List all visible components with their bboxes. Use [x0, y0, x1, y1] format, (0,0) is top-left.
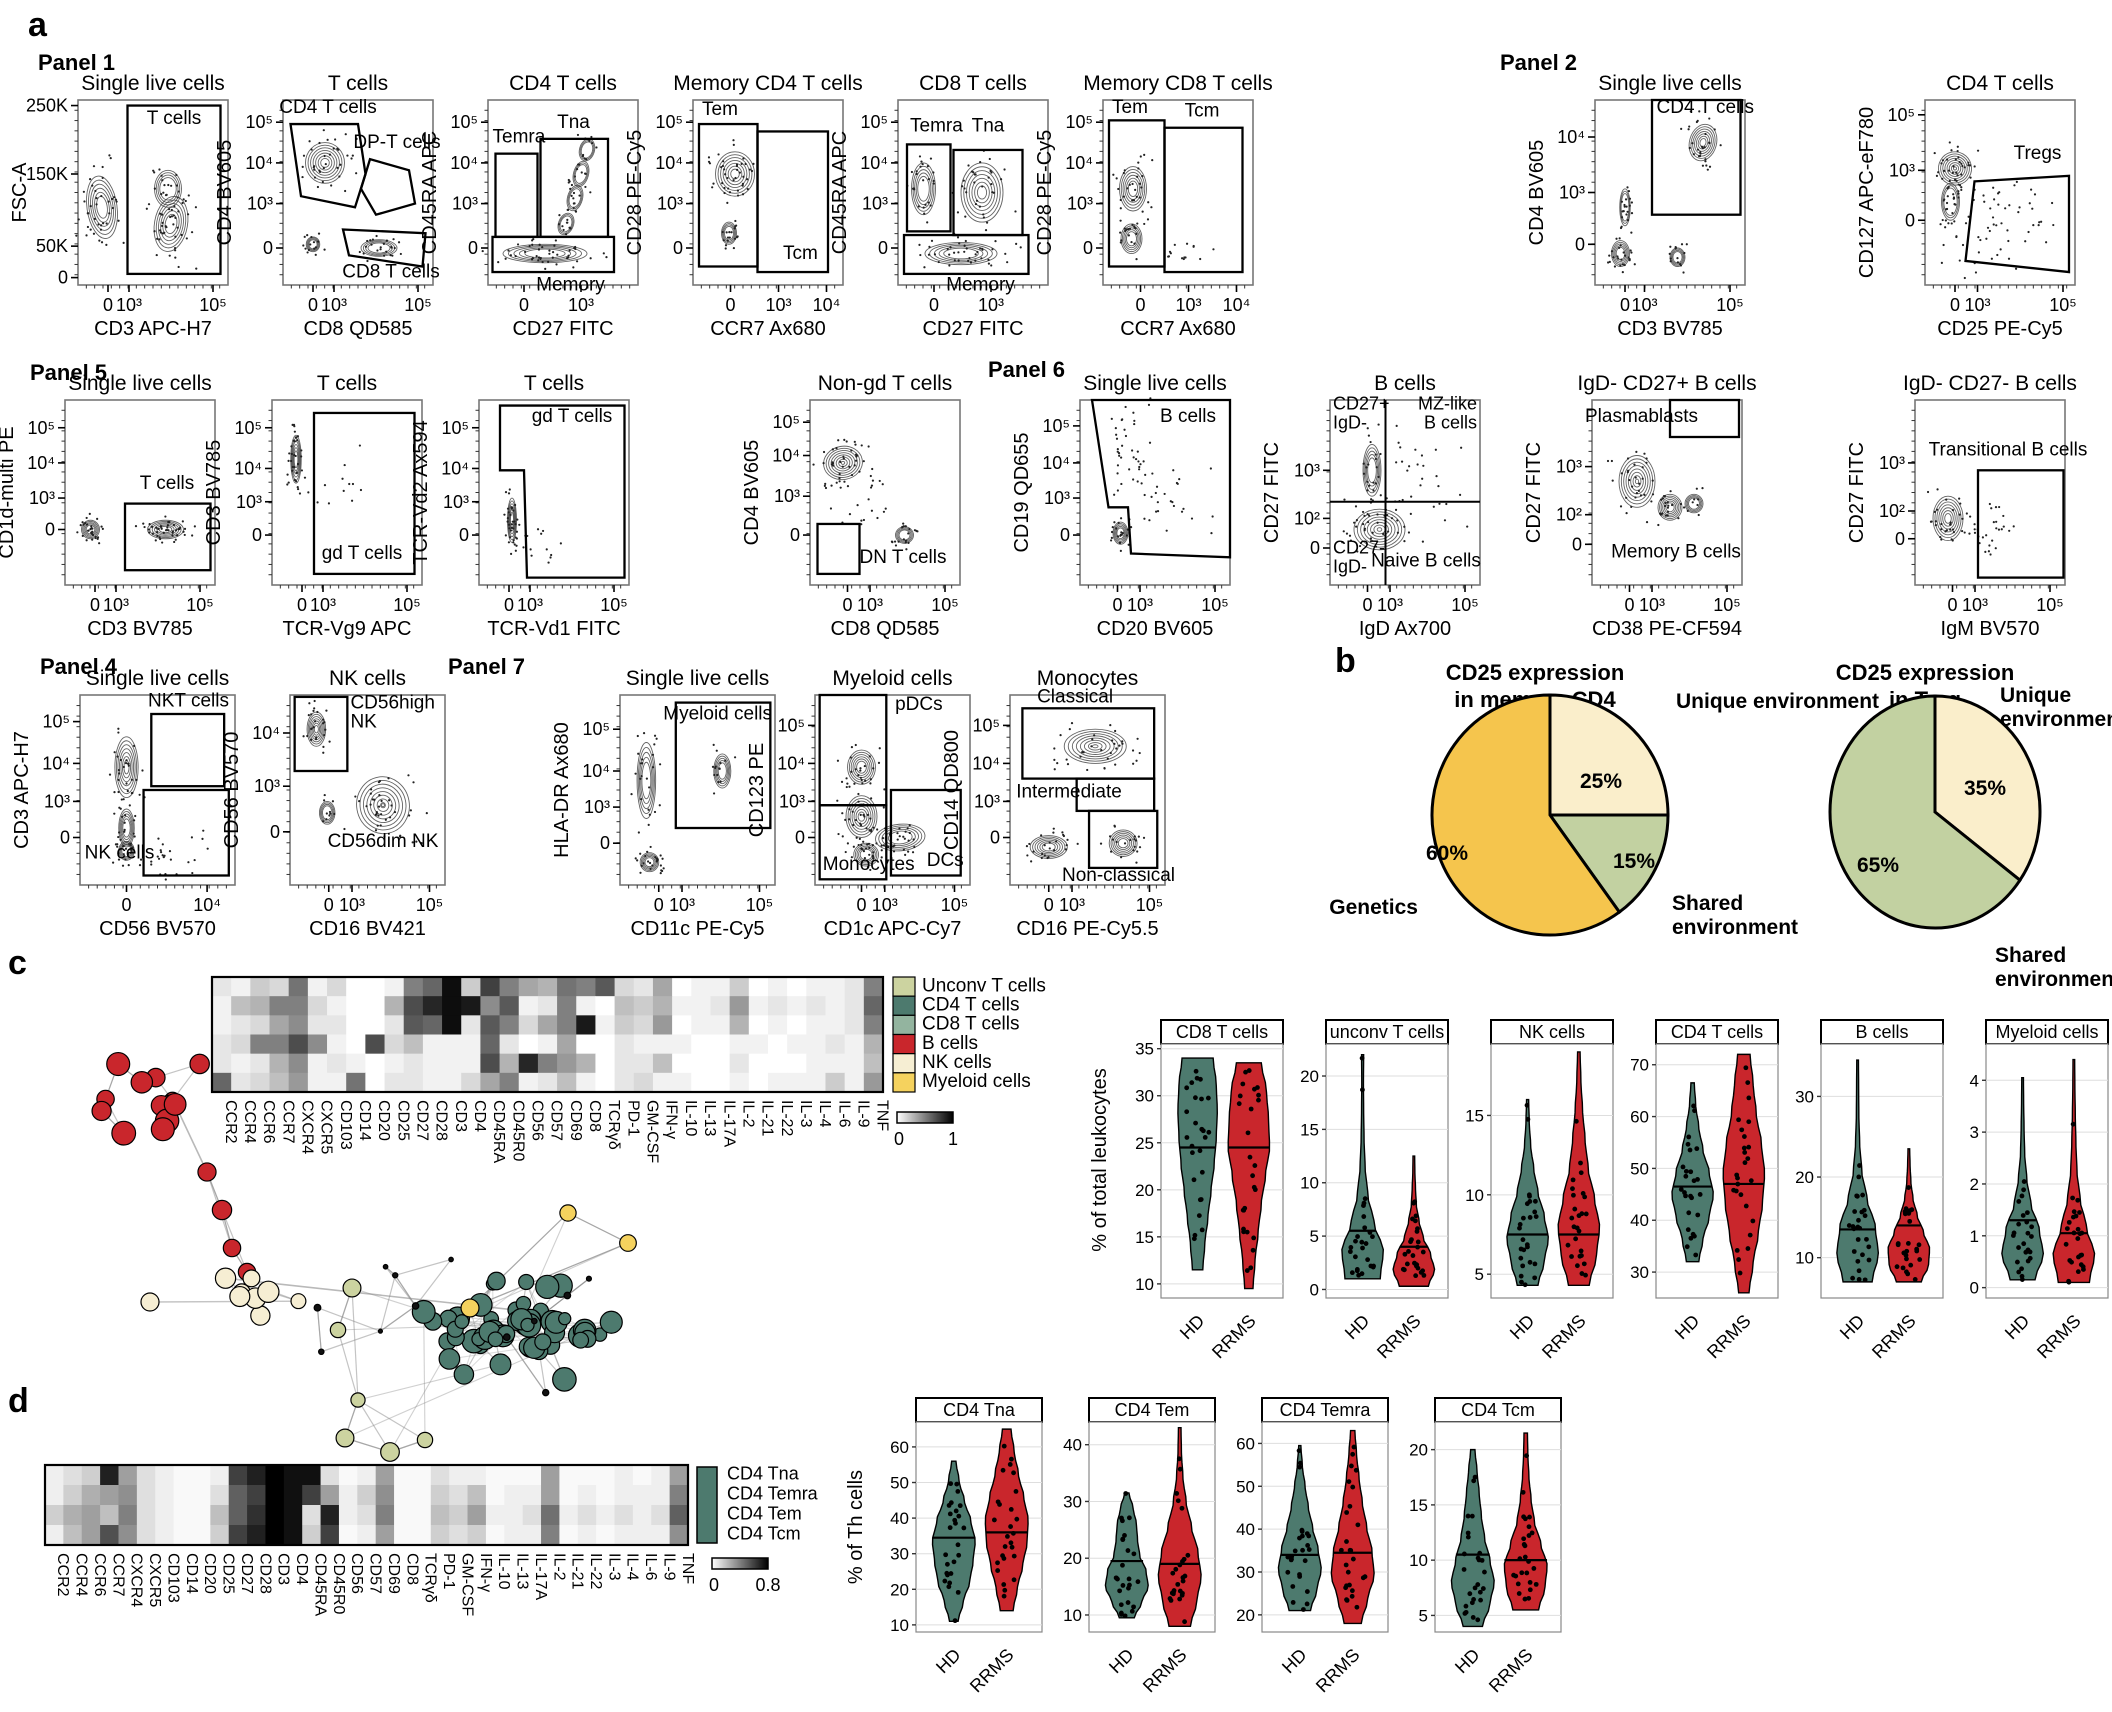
scatter-dot: [156, 238, 158, 240]
scatter-dot: [1950, 149, 1952, 151]
heatmap-col-label: CD57: [367, 1553, 384, 1594]
scatter-dot: [94, 218, 96, 220]
y-tick-label: 10⁵: [246, 112, 273, 132]
data-point: [1201, 1128, 1206, 1133]
scatter-dot: [967, 260, 969, 262]
scatter-dot: [1683, 252, 1685, 254]
scatter-dot: [644, 855, 646, 857]
scatter-dot: [1053, 828, 1055, 830]
heatmap-cell: [845, 1073, 865, 1093]
scatter-dot: [1974, 528, 1976, 530]
scatter-dot: [1044, 854, 1046, 856]
scatter-dot: [1112, 174, 1114, 176]
scatter-dot: [505, 491, 507, 493]
y-tick-label: 0: [1310, 1280, 1319, 1299]
data-point: [948, 1511, 953, 1516]
scatter-dot: [327, 139, 329, 141]
plot-title: Single live cells: [86, 667, 230, 690]
network-node-t-cells: [439, 1349, 460, 1370]
scatter-dot: [1698, 514, 1700, 516]
heatmap-cell: [442, 996, 462, 1016]
scatter-dot: [642, 862, 644, 864]
scatter-dot: [919, 254, 921, 256]
data-point: [1123, 1491, 1128, 1496]
heatmap-cell: [231, 1073, 251, 1093]
heatmap-col-label: IL-6: [835, 1100, 852, 1128]
scatter-dot: [1619, 237, 1621, 239]
legend-bar: [697, 1467, 717, 1543]
scatter-dot: [1438, 503, 1440, 505]
heatmap-cell: [346, 1015, 366, 1035]
scatter-dot: [719, 762, 721, 764]
data-point: [1413, 1273, 1418, 1278]
data-point: [1686, 1210, 1691, 1215]
data-point: [1862, 1208, 1867, 1213]
scatter-dot: [1964, 277, 1966, 279]
scatter-dot: [1998, 529, 2000, 531]
heatmap-cell: [449, 1505, 468, 1526]
scatter-dot: [1124, 842, 1126, 844]
data-point: [2029, 1234, 2034, 1239]
network-edge: [358, 1400, 425, 1440]
heatmap-cell: [825, 1054, 845, 1074]
scatter-dot: [394, 247, 396, 249]
pie-memcd4: CD25 expressionin memory CD425%15%60%Gen…: [1329, 660, 1879, 939]
scatter-dot: [1701, 487, 1703, 489]
gate-label: Tem: [702, 99, 738, 120]
scatter-dot: [1113, 494, 1115, 496]
scatter-dot: [1435, 449, 1437, 451]
scatter-dot: [868, 445, 870, 447]
scatter-dot: [1170, 500, 1172, 502]
heatmap-cell: [212, 1073, 232, 1093]
y-tick-label: 10³: [1559, 183, 1585, 203]
data-point: [1349, 1464, 1354, 1469]
heatmap-cell: [250, 1054, 270, 1074]
scatter-dot: [377, 825, 379, 827]
heatmap-cell: [212, 977, 232, 997]
heatmap-col-label: CD4: [471, 1100, 488, 1132]
scatter-dot: [841, 781, 843, 783]
scatter-dot: [1066, 839, 1068, 841]
heatmap-cell: [423, 1035, 443, 1055]
data-point: [1470, 1600, 1475, 1605]
scatter-dot: [515, 255, 517, 257]
scatter-dot: [1363, 473, 1365, 475]
scatter-dot: [812, 463, 814, 465]
scatter-dot: [638, 831, 640, 833]
scatter-dot: [1676, 257, 1678, 259]
scatter-dot: [648, 824, 650, 826]
scatter-dot: [170, 185, 172, 187]
scatter-dot: [660, 854, 662, 856]
category-label: RRMS: [966, 1645, 1018, 1697]
heatmap-cell: [385, 996, 405, 1016]
scatter-dot: [966, 247, 968, 249]
x-tick-label: 10⁵: [2036, 595, 2063, 615]
scatter-dot: [1403, 526, 1405, 528]
scatter-dot: [195, 206, 197, 208]
scatter-dot: [295, 471, 297, 473]
y-tick-label: 5: [1475, 1265, 1484, 1284]
heatmap-cell: [449, 1465, 468, 1486]
scatter-dot: [1435, 475, 1437, 477]
scatter-dot: [1950, 521, 1952, 523]
scatter-dot: [1982, 536, 1984, 538]
heatmap-cell: [461, 977, 481, 997]
heatmap-cell: [538, 977, 558, 997]
scatter-dot: [163, 232, 165, 234]
scatter-dot: [1147, 201, 1149, 203]
scatter-dot: [315, 738, 317, 740]
data-point: [2011, 1233, 2016, 1238]
heatmap-cell: [541, 1525, 560, 1546]
scatter-dot: [359, 444, 361, 446]
heatmap-cell: [559, 1465, 578, 1486]
x-tick-label: 10³: [872, 895, 898, 915]
scatter-dot: [315, 254, 317, 256]
scatter-dot: [184, 528, 186, 530]
heatmap-col-label: CD14: [356, 1100, 373, 1141]
scatter-dot: [174, 236, 176, 238]
heatmap-cell: [615, 977, 635, 997]
data-point: [1402, 1267, 1407, 1272]
scatter-dot: [1139, 846, 1141, 848]
scatter-dot: [1962, 244, 1964, 246]
data-point: [1908, 1263, 1913, 1268]
heatmap-col-label: IL-10: [495, 1553, 512, 1590]
data-point: [956, 1553, 961, 1558]
heatmap-col-label: GM-CSF: [644, 1100, 661, 1163]
scatter-dot: [902, 836, 904, 838]
y-axis-label: CD45RA APC: [419, 131, 441, 254]
scatter-dot: [1041, 857, 1043, 859]
data-point: [1528, 1260, 1533, 1265]
scatter-dot: [1117, 464, 1119, 466]
scatter-dot: [1199, 258, 1201, 260]
scatter-dot: [863, 519, 865, 521]
data-point: [1285, 1570, 1290, 1575]
heatmap-cell: [365, 1073, 385, 1093]
y-tick-label: 10³: [1044, 488, 1070, 508]
heatmap-cell: [595, 1035, 615, 1055]
heatmap-cell: [118, 1525, 137, 1546]
scatter-dot: [1113, 825, 1115, 827]
data-point: [2021, 1187, 2026, 1192]
y-axis-label: CD45RA APC: [829, 131, 851, 254]
heatmap-cell: [302, 1465, 321, 1486]
heatmap-cell: [576, 1035, 596, 1055]
scatter-dot: [1626, 211, 1628, 213]
scatter-dot: [170, 859, 172, 861]
scatter-dot: [1995, 521, 1997, 523]
scatter-dot: [1135, 258, 1137, 260]
y-tick-label: 10⁵: [43, 712, 70, 732]
scatter-dot: [1934, 511, 1936, 513]
data-point: [1240, 1082, 1245, 1087]
data-point: [1119, 1516, 1124, 1521]
scatter-dot: [123, 831, 125, 833]
network-node-t-cells: [553, 1368, 576, 1391]
data-point: [1742, 1146, 1747, 1151]
scatter-dot: [1417, 463, 1419, 465]
scatter-dot: [1066, 844, 1068, 846]
legend-label: CD4 T cells: [922, 995, 1020, 1016]
scatter-dot: [1133, 243, 1135, 245]
scatter-dot: [2016, 181, 2018, 183]
y-tick-label: 0: [1572, 534, 1582, 554]
scatter-dot: [1949, 528, 1951, 530]
scatter-dot: [288, 452, 290, 454]
scatter-dot: [957, 236, 959, 238]
flow-plot-p1-cd4: CD4 T cells010³010³10⁴10⁵CD27 FITCCD45RA…: [419, 72, 638, 340]
scatter-dot: [309, 243, 311, 245]
heatmap-cell: [653, 977, 673, 997]
scatter-dot: [1401, 461, 1403, 463]
heatmap-cell: [787, 977, 807, 997]
legend-label: B cells: [922, 1033, 978, 1054]
data-point: [1482, 1570, 1487, 1575]
scatter-dot: [317, 186, 319, 188]
data-point: [1579, 1170, 1584, 1175]
heatmap-cell: [845, 1015, 865, 1035]
scatter-dot: [1702, 147, 1704, 149]
data-point: [2016, 1199, 2021, 1204]
data-point: [1303, 1558, 1308, 1563]
heatmap-cell: [82, 1485, 101, 1506]
scatter-dot: [1014, 210, 1016, 212]
legend-label: NK cells: [922, 1052, 992, 1073]
scatter-dot: [162, 843, 164, 845]
data-point: [1343, 1585, 1348, 1590]
scatter-dot: [1118, 455, 1120, 457]
heatmap-col-label: IL-22: [778, 1100, 795, 1137]
scatter-dot: [522, 546, 524, 548]
scatter-dot: [902, 523, 904, 525]
data-point: [1688, 1169, 1693, 1174]
scatter-dot: [359, 251, 361, 253]
heatmap-cell: [247, 1485, 266, 1506]
scatter-dot: [86, 539, 88, 541]
heatmap-cell: [634, 977, 654, 997]
data-point: [1863, 1213, 1868, 1218]
scatter-dot: [1692, 501, 1694, 503]
scatter-dot: [861, 782, 863, 784]
y-tick-label: 10⁴: [772, 446, 800, 466]
scatter-dot: [116, 756, 118, 758]
heatmap-cell: [845, 1054, 865, 1074]
y-tick-label: 10: [1795, 1249, 1814, 1268]
gate-label: Temra: [910, 115, 963, 136]
scatter-dot: [1936, 175, 1938, 177]
legend-swatch: [893, 1054, 915, 1073]
x-tick-label: 10³: [857, 595, 883, 615]
y-tick-label: 10⁵: [861, 112, 888, 132]
x-axis-label: CCR7 Ax680: [710, 318, 826, 340]
scatter-dot: [856, 504, 858, 506]
pie-title: CD25 expression: [1446, 660, 1625, 685]
data-point: [1688, 1194, 1693, 1199]
y-tick-label: 20: [890, 1580, 909, 1599]
y-tick-label: 0: [468, 238, 478, 258]
scatter-dot: [304, 477, 306, 479]
scatter-dot: [907, 542, 909, 544]
scatter-dot: [84, 522, 86, 524]
scatter-dot: [391, 247, 393, 249]
heatmap-cell: [538, 1015, 558, 1035]
data-point: [1206, 1130, 1211, 1135]
scatter-dot: [1056, 762, 1058, 764]
scatter-dot: [308, 714, 310, 716]
scatter-dot: [348, 483, 350, 485]
scatter-dot: [1624, 255, 1626, 257]
scatter-dot: [1151, 472, 1153, 474]
y-tick-label: 60: [1630, 1108, 1649, 1127]
data-point: [1917, 1242, 1922, 1247]
scatter-dot: [1607, 460, 1609, 462]
heatmap-cell: [346, 977, 366, 997]
scatter-dot: [922, 163, 924, 165]
scatter-dot: [660, 869, 662, 871]
y-tick-label: 10²: [1294, 508, 1320, 528]
data-point: [1008, 1462, 1013, 1467]
scatter-dot: [742, 176, 744, 178]
scatter-dot: [1380, 494, 1382, 496]
data-point: [1524, 1571, 1529, 1576]
scatter-dot: [124, 814, 126, 816]
heatmap-col-label: CXCR5: [318, 1100, 335, 1154]
x-tick-label: 0: [929, 295, 939, 315]
figure-canvas: a b c d Panel 1Panel 2Panel 5Panel 6Pane…: [0, 0, 2112, 1712]
heatmap-cell: [63, 1505, 82, 1526]
data-point: [1182, 1619, 1187, 1624]
heatmap-cell: [480, 1035, 500, 1055]
gate-label: Classical: [1037, 687, 1113, 708]
heatmap-cell: [557, 996, 577, 1016]
data-point: [1863, 1277, 1868, 1282]
scatter-dot: [1155, 492, 1157, 494]
scatter-dot: [871, 468, 873, 470]
scatter-dot: [1667, 501, 1669, 503]
scatter-dot: [869, 782, 871, 784]
heatmap-col-label: IL-10: [682, 1100, 699, 1137]
y-tick-label: 0: [45, 520, 55, 540]
scatter-dot: [1623, 210, 1625, 212]
scatter-dot: [742, 157, 744, 159]
scatter-dot: [1111, 537, 1113, 539]
heatmap-cell: [504, 1525, 523, 1546]
data-point: [1173, 1567, 1178, 1572]
y-axis-label: CD3 APC-H7: [11, 731, 33, 849]
data-point: [995, 1568, 1000, 1573]
scatter-dot: [1952, 509, 1954, 511]
scatter-dot: [893, 850, 895, 852]
scatter-dot: [352, 483, 354, 485]
scatter-dot: [585, 173, 587, 175]
scatter-dot: [970, 261, 972, 263]
scatter-dot: [1120, 239, 1122, 241]
scatter-dot: [127, 790, 129, 792]
scatter-dot: [1115, 427, 1117, 429]
data-point: [1470, 1514, 1475, 1519]
network-node-unconv-t-cells: [351, 1393, 365, 1407]
scatter-dot: [723, 168, 725, 170]
data-point: [1011, 1470, 1016, 1475]
scatter-dot: [1709, 166, 1711, 168]
data-point: [1350, 1588, 1355, 1593]
scatter-dot: [1140, 186, 1142, 188]
heatmap-cell: [404, 996, 424, 1016]
scatter-dot: [1372, 532, 1374, 534]
scatter-dot: [111, 198, 113, 200]
scatter-dot: [162, 222, 164, 224]
gate-label: T cells: [140, 473, 195, 494]
scatter-dot: [407, 774, 409, 776]
scatter-dot: [121, 816, 123, 818]
scatter-dot: [1143, 518, 1145, 520]
data-point: [1344, 1563, 1349, 1568]
scatter-dot: [1135, 233, 1137, 235]
data-point: [1251, 1248, 1256, 1253]
heatmap-cell: [825, 1035, 845, 1055]
scatter-dot: [717, 153, 719, 155]
scatter-dot: [1995, 506, 1997, 508]
data-point: [1866, 1244, 1871, 1249]
scatter-dot: [322, 719, 324, 721]
scatter-dot: [333, 147, 335, 149]
scatter-dot: [1660, 499, 1662, 501]
scatter-dot: [160, 849, 162, 851]
scatter-dot: [855, 460, 857, 462]
data-point: [1237, 1101, 1242, 1106]
heatmap-cell: [523, 1485, 542, 1506]
scatter-dot: [530, 548, 532, 550]
scatter-dot: [1148, 404, 1150, 406]
scatter-dot: [1993, 198, 1995, 200]
data-point: [1471, 1615, 1476, 1620]
pie-label: 25%: [1580, 770, 1622, 793]
pie-slice-unique-environment: [1550, 695, 1668, 815]
heatmap-cell: [289, 1054, 309, 1074]
y-tick-label: 10⁵: [773, 412, 800, 432]
scatter-dot: [172, 223, 174, 225]
scatter-dot: [119, 839, 121, 841]
data-point: [956, 1542, 961, 1547]
data-point: [2065, 1226, 2070, 1231]
data-point: [1238, 1094, 1243, 1099]
scatter-dot: [717, 781, 719, 783]
scatter-dot: [718, 767, 720, 769]
scatter-dot: [896, 832, 898, 834]
data-point: [1519, 1570, 1524, 1575]
scatter-dot: [576, 260, 578, 262]
scatter-dot: [979, 206, 981, 208]
heatmap-cell: [431, 1465, 450, 1486]
network-node-b-cells: [151, 1118, 174, 1141]
scatter-dot: [1680, 128, 1682, 130]
scatter-dot: [1433, 506, 1435, 508]
heatmap-cell: [710, 1035, 730, 1055]
data-point: [1251, 1235, 1256, 1240]
heatmap-cell: [596, 1465, 615, 1486]
y-tick-label: 3: [1970, 1123, 1979, 1142]
heatmap-cell: [500, 1035, 520, 1055]
scatter-dot: [531, 244, 533, 246]
scatter-dot: [505, 258, 507, 260]
scatter-dot: [1138, 836, 1140, 838]
y-tick-label: 10⁵: [1043, 416, 1070, 436]
category-label: HD: [1278, 1645, 1311, 1678]
